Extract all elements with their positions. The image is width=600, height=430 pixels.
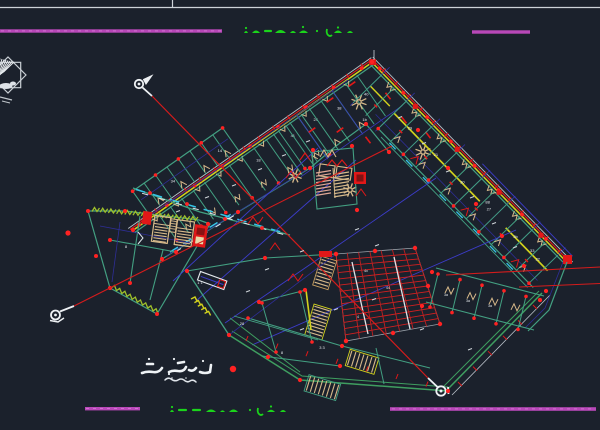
svg-text:18: 18 bbox=[256, 157, 261, 162]
svg-text:4: 4 bbox=[357, 315, 359, 319]
svg-text:28: 28 bbox=[240, 321, 245, 326]
svg-text:30: 30 bbox=[460, 179, 465, 184]
svg-text:4x: 4x bbox=[364, 269, 368, 273]
svg-text:3a: 3a bbox=[466, 299, 470, 303]
svg-text:3a: 3a bbox=[444, 293, 448, 297]
svg-text:14: 14 bbox=[218, 148, 223, 153]
svg-text:22: 22 bbox=[536, 257, 541, 262]
svg-text:88: 88 bbox=[485, 200, 490, 205]
svg-text:27: 27 bbox=[487, 207, 492, 212]
svg-text:40: 40 bbox=[364, 92, 369, 97]
svg-text:34: 34 bbox=[171, 178, 176, 183]
svg-text:3b: 3b bbox=[513, 234, 518, 239]
svg-text:3a: 3a bbox=[488, 304, 492, 308]
svg-text:29: 29 bbox=[408, 126, 413, 131]
svg-text:3 3: 3 3 bbox=[319, 345, 325, 350]
svg-text:33: 33 bbox=[530, 248, 535, 253]
svg-text:21: 21 bbox=[434, 152, 439, 157]
svg-text:44: 44 bbox=[386, 286, 390, 290]
svg-text:1b: 1b bbox=[362, 117, 367, 122]
svg-text:38: 38 bbox=[337, 105, 342, 110]
